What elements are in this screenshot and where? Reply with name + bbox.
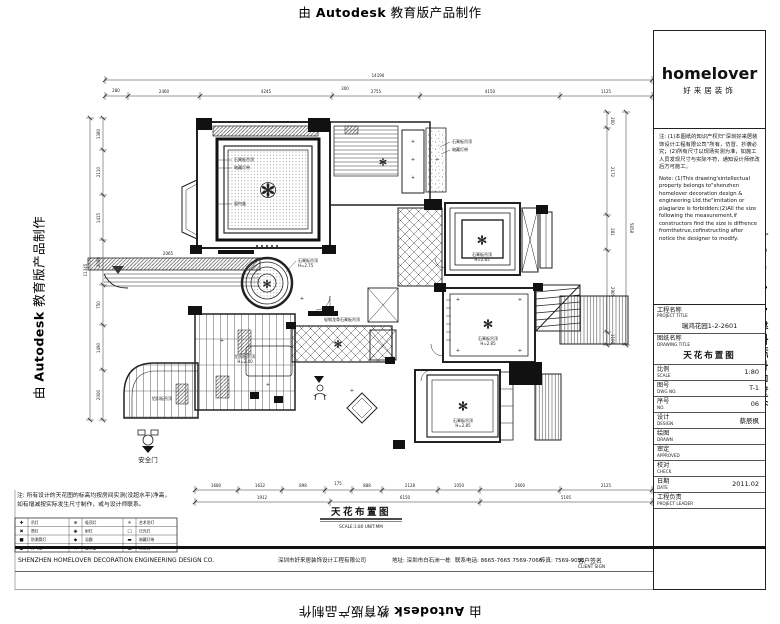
dimension-label: 1632 (255, 483, 266, 488)
plan-annotation: 2065 (163, 251, 174, 256)
client-sign-block: 客户签名 CLIENT SIGN (578, 556, 605, 570)
field-label-en: PROJECT TITLE (657, 314, 762, 319)
dimension-label: 4150 (485, 89, 496, 94)
plan-annotation: + (456, 348, 460, 354)
plan-annotation: + (300, 296, 304, 302)
safety-door-label: 安全门 (138, 455, 158, 464)
field-label-en: DRAWN (657, 438, 673, 443)
entry-lattice-ceiling (398, 208, 442, 286)
dimension-label: 2905 (610, 287, 615, 298)
legend-symbol: ◉ (74, 529, 78, 534)
dimension-label: 5658 (629, 223, 634, 234)
plan-annotation: + (456, 297, 460, 303)
field-project-title: 工程名称PROJECT TITLE瑞鸿花园1-2-2601 (654, 305, 765, 334)
dimension-label: 281 (610, 228, 615, 236)
right-balcony-ceiling (560, 296, 628, 344)
dimension-label: 888 (363, 483, 371, 488)
field-label: 审定APPROVED (657, 446, 680, 458)
legend-label: 防潮筒灯 (31, 537, 46, 542)
legend-symbol: ■ (19, 538, 23, 543)
footer-phone: 联系电话: 8665-7665 7569-7066 (455, 556, 543, 564)
legend-label: 暗藏灯带 (139, 537, 154, 542)
autodesk-watermark-left: 由 Autodesk 教育版产品制作 (29, 208, 48, 408)
field-label: 工程名称PROJECT TITLE (657, 307, 762, 319)
plan-annotation: 石膏板吊顶 (452, 138, 472, 144)
plan-annotation: H=2.75 (298, 263, 314, 268)
field-drawn: 绘图DRAWN (654, 429, 765, 445)
dimension-label: 750 (96, 301, 101, 309)
dimension-label: 2125 (601, 483, 612, 488)
watermark-pre: 由 (469, 604, 482, 619)
bedroom-top-right-ceiling (445, 203, 552, 275)
legend-label: 筒灯 (31, 528, 39, 533)
dimension-label: 11345 (83, 263, 88, 276)
dimension-label: 2090 (96, 256, 101, 267)
legend-label: 吊灯 (31, 520, 39, 525)
dimension-label: 1490 (96, 342, 101, 353)
dimension-label: 300 (341, 86, 349, 91)
field-no-: 序号NO.06 (654, 397, 765, 413)
field-check: 校对CHECK (654, 461, 765, 477)
plan-annotation: + (411, 175, 415, 181)
watermark-post: 教育版产品制作 (32, 216, 47, 307)
dimension-label: 2110 (96, 166, 101, 177)
field-scale: 比例SCALE1:80 (654, 365, 765, 381)
field-label: 序号NO. (657, 398, 669, 410)
plan-annotation: + (411, 139, 415, 145)
field-label: 比例SCALE (657, 366, 670, 378)
client-sign-en: CLIENT SIGN (578, 565, 605, 570)
note-english: Note: (1)This drawing'sintellectual prop… (659, 176, 760, 244)
legend-symbol: ✖ (20, 528, 24, 534)
watermark-brand: Autodesk (32, 311, 47, 381)
logo-subtitle: 好来居装饰 (683, 85, 736, 96)
title-block: homelover 好来居装饰 注: (1)本图纸的知识产权归“深圳好来居装饰设… (653, 30, 766, 590)
dimension-label: 1125 (601, 89, 612, 94)
bottom-left-notes: 注: 所有设计的天花图的标高均按房间实测(没超水平)净高， 如有增减按实际发生尺… (17, 492, 170, 510)
dimension-label: 1050 (454, 483, 465, 488)
plan-annotation: H=2.85 (474, 257, 490, 262)
plan-annotation: H=2.85 (480, 341, 496, 346)
plan-annotation: 暗藏灯带 (452, 146, 468, 152)
safety-door-symbol (138, 430, 158, 453)
dimension-label: 200 (610, 117, 615, 125)
field-label: 图号DWG NO. (657, 382, 677, 394)
legend-label: 吸顶灯 (85, 520, 97, 525)
dimension-label: 2460 (159, 89, 170, 94)
field-value: 06 (751, 400, 762, 408)
watermark-post: 教育版产品制作 (298, 604, 389, 619)
note-chinese: 注: (1)本图纸的知识产权归“深圳好来居装饰设计工程有限公司”所有，仿冒、抄袭… (659, 134, 760, 172)
watermark-brand: Autodesk (394, 604, 464, 619)
legend-symbol: ✳ (128, 520, 132, 526)
legend-label: 艺术吊灯 (139, 520, 154, 525)
dimension-label: 898 (299, 483, 307, 488)
field-value: 蔡辰枫 (740, 415, 763, 425)
plan-annotation: 石膏板吊顶 (234, 156, 254, 162)
dimension-label: 2660 (515, 483, 526, 488)
plan-annotation: 暗藏灯带 (234, 164, 250, 170)
plan-annotation: H=2.85 (455, 423, 471, 428)
plan-scale-note: SCALE:1:80 UNIT:MM (339, 524, 383, 529)
logo-name: homelover (662, 64, 758, 83)
legend-symbol: □ (127, 529, 131, 534)
person-figure (314, 376, 326, 400)
plan-annotation: + (350, 388, 354, 394)
field-dwg-no-: 图号DWG NO.T-1 (654, 381, 765, 397)
field-label-en: CHECK (657, 470, 671, 475)
dimension-label: 2172 (610, 167, 615, 178)
plan-annotation: + (411, 157, 415, 163)
legend-label: 射灯 (85, 528, 93, 533)
autodesk-watermark-top: 由 Autodesk 教育版产品制作 (0, 2, 780, 21)
field-value: 天花布置图 (657, 349, 762, 361)
client-sign-cn: 客户签名 (578, 556, 605, 565)
dimension-label: 6150 (400, 495, 411, 500)
dimension-label: 4245 (261, 89, 272, 94)
plan-annotation: + (518, 348, 522, 354)
company-logo: homelover 好来居装饰 (654, 31, 765, 129)
legend-symbol: ✚ (20, 520, 24, 526)
plan-annotation: 铝扣板吊顶 (152, 395, 172, 401)
field-label: 绘图DRAWN (657, 430, 673, 442)
field-label: 校对CHECK (657, 462, 671, 474)
dimension-label: 175 (334, 481, 342, 486)
watermark-post: 教育版产品制作 (391, 5, 482, 20)
field-value: 1:80 (744, 368, 762, 376)
field-label-en: APPROVED (657, 454, 680, 459)
field-label-en: SCALE (657, 374, 670, 379)
walls (88, 122, 628, 442)
dimension-label: 14190 (372, 73, 385, 78)
field-label-en: DESIGN (657, 422, 673, 427)
legend-symbol: ⊕ (74, 521, 78, 526)
title-block-notes: 注: (1)本图纸的知识产权归“深圳好来居装饰设计工程有限公司”所有，仿冒、抄袭… (654, 129, 765, 305)
dimension-label: 1100 (610, 334, 615, 345)
floor-diamond (347, 393, 377, 423)
field-drawing-title: 图纸名称DRAWING TITLE天花布置图 (654, 334, 765, 365)
bottom-divider-bar (15, 546, 766, 549)
watermark-pre: 由 (32, 386, 47, 399)
field-label-en: DATE (657, 486, 669, 491)
legend-symbol: ◆ (74, 538, 78, 543)
note-line-1: 注: 所有设计的天花图的标高均按房间实测(没超水平)净高， (17, 492, 170, 501)
dimension-label: 280 (112, 88, 120, 93)
l-balcony-ceiling (124, 363, 198, 418)
field-label-en: DRAWING TITLE (657, 343, 762, 348)
footer-line: SHENZHEN HOMELOVER DECORATION ENGINEERIN… (18, 556, 585, 564)
dimension-label: 5195 (561, 495, 572, 500)
dimension-label: 1912 (257, 495, 268, 500)
legend-symbol: ▬ (127, 538, 131, 543)
dimension-label: 2128 (405, 483, 416, 488)
dimension-label: 2755 (371, 89, 382, 94)
bay-window (182, 180, 197, 239)
plan-annotation: + (266, 382, 270, 388)
plan-title: 天花布置图 (331, 506, 391, 518)
field-label-en: NO. (657, 406, 669, 411)
field-label: 日期DATE (657, 478, 669, 490)
dimension-label: 1415 (96, 212, 101, 223)
field-label: 工程负责PROJECT LEADER (657, 494, 693, 506)
field-design: 设计DESIGN蔡辰枫 (654, 413, 765, 429)
watermark-brand: Autodesk (316, 5, 386, 20)
field-label: 设计DESIGN (657, 414, 673, 426)
plan-annotation: 窗帘盒 (234, 200, 246, 206)
legend-label: 浴霸 (85, 537, 93, 542)
footer-company-cn: 深圳市好来居装饰设计工程有限公司 (278, 556, 366, 564)
field-date: 日期DATE2011.02 (654, 477, 765, 493)
field-label-en: DWG NO. (657, 390, 677, 395)
field-approved: 审定APPROVED (654, 445, 765, 461)
plan-annotation: 轻钢龙骨石膏板吊顶 (324, 316, 360, 322)
title-block-fields: 工程名称PROJECT TITLE瑞鸿花园1-2-2601图纸名称DRAWING… (654, 305, 765, 509)
plan-annotation: + (518, 297, 522, 303)
plan-title-group: 天花布置图 SCALE:1:80 UNIT:MM (320, 506, 402, 529)
note-line-2: 如有增减按实际发生尺寸制作，或与设计师联系。 (17, 501, 170, 510)
watermark-pre: 由 (298, 5, 311, 20)
legend-label: 日光灯 (139, 528, 151, 533)
drawing-sheet: 安全门 天花布置图 SCALE:1:80 UNIT:MM SHENZHEN HO… (0, 0, 780, 624)
footer-address: 地址: 深圳市白石洲一栋 (392, 556, 451, 564)
footer-company-en: SHENZHEN HOMELOVER DECORATION ENGINEERIN… (18, 557, 214, 564)
dimension-label: 1380 (96, 128, 101, 139)
plan-annotation: + (220, 338, 224, 344)
plan-annotation: + (435, 157, 439, 163)
entry-hall-top (330, 122, 446, 205)
dimension-label: 1680 (211, 483, 222, 488)
field-project-leader: 工程负责PROJECT LEADER (654, 493, 765, 509)
section-detail (88, 258, 260, 288)
dimension-label: 2000 (96, 389, 101, 400)
plan-annotation: H=2.40 (237, 359, 253, 364)
field-value: 瑞鸿花园1-2-2601 (657, 320, 762, 330)
field-value: T-1 (749, 384, 762, 392)
field-label: 图纸名称DRAWING TITLE (657, 335, 762, 347)
field-label-en: PROJECT LEADER (657, 502, 693, 507)
autodesk-watermark-bottom: 由 Autodesk 教育版产品制作 (0, 603, 780, 622)
field-value: 2011.02 (732, 480, 762, 488)
